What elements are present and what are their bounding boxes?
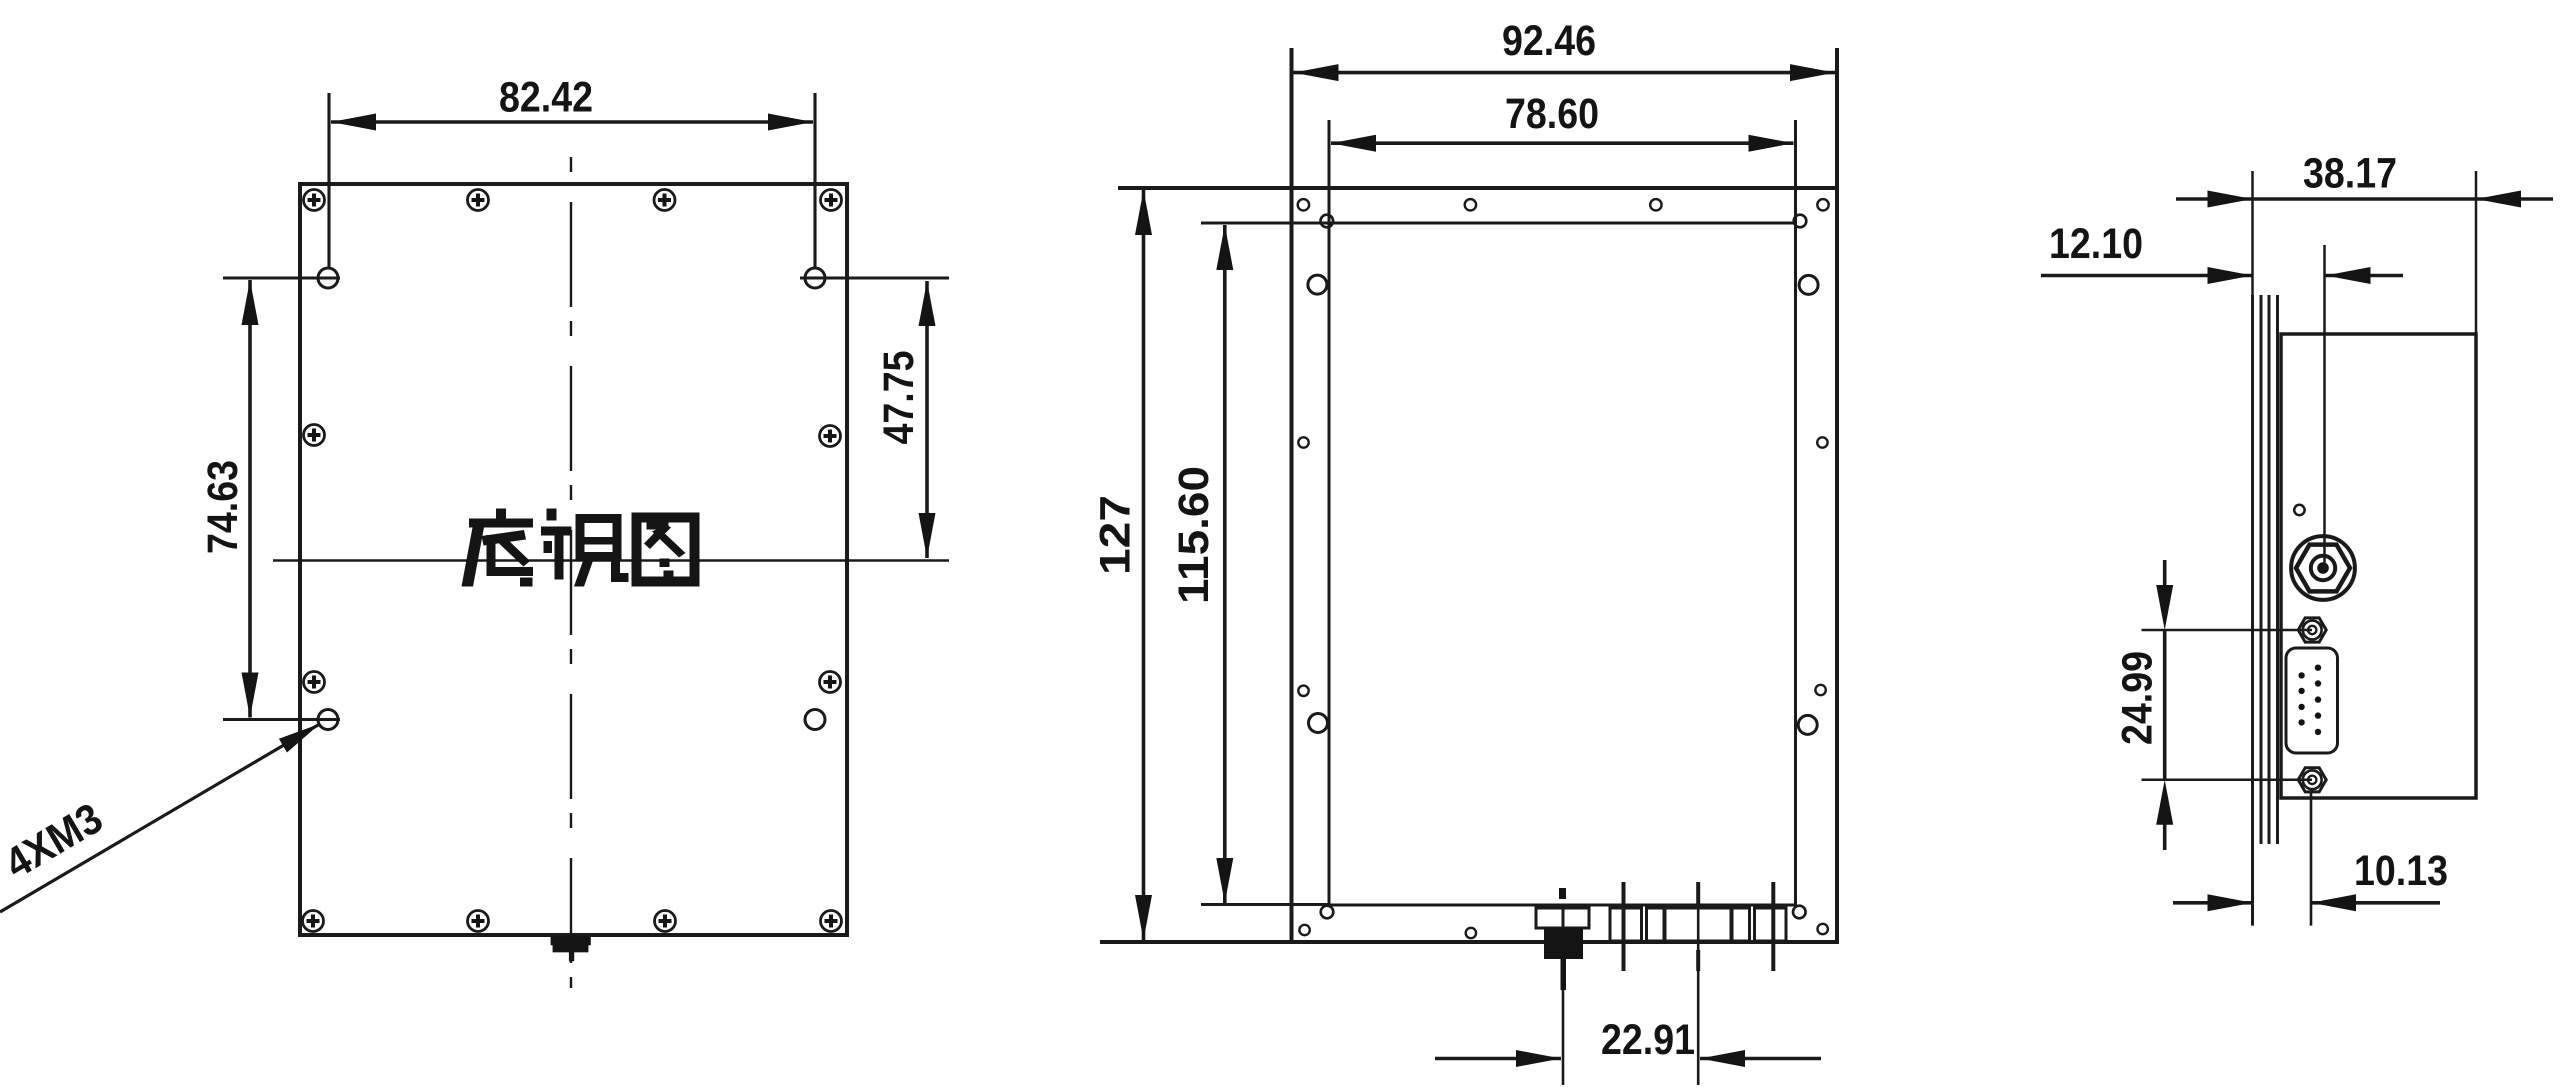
svg-text:74.63: 74.63 — [199, 460, 247, 554]
svg-text:4XM3: 4XM3 — [0, 794, 111, 888]
svg-text:47.75: 47.75 — [875, 351, 923, 445]
svg-text:38.17: 38.17 — [2303, 149, 2397, 197]
svg-text:92.46: 92.46 — [1502, 17, 1596, 65]
svg-text:22.91: 22.91 — [1601, 1016, 1695, 1064]
svg-text:78.60: 78.60 — [1505, 90, 1599, 138]
svg-text:10.13: 10.13 — [2354, 847, 2448, 895]
svg-text:12.10: 12.10 — [2049, 220, 2143, 268]
svg-text:127: 127 — [1092, 495, 1140, 575]
svg-text:82.42: 82.42 — [499, 73, 593, 121]
svg-text:115.60: 115.60 — [1170, 466, 1218, 604]
svg-text:24.99: 24.99 — [2114, 651, 2162, 745]
